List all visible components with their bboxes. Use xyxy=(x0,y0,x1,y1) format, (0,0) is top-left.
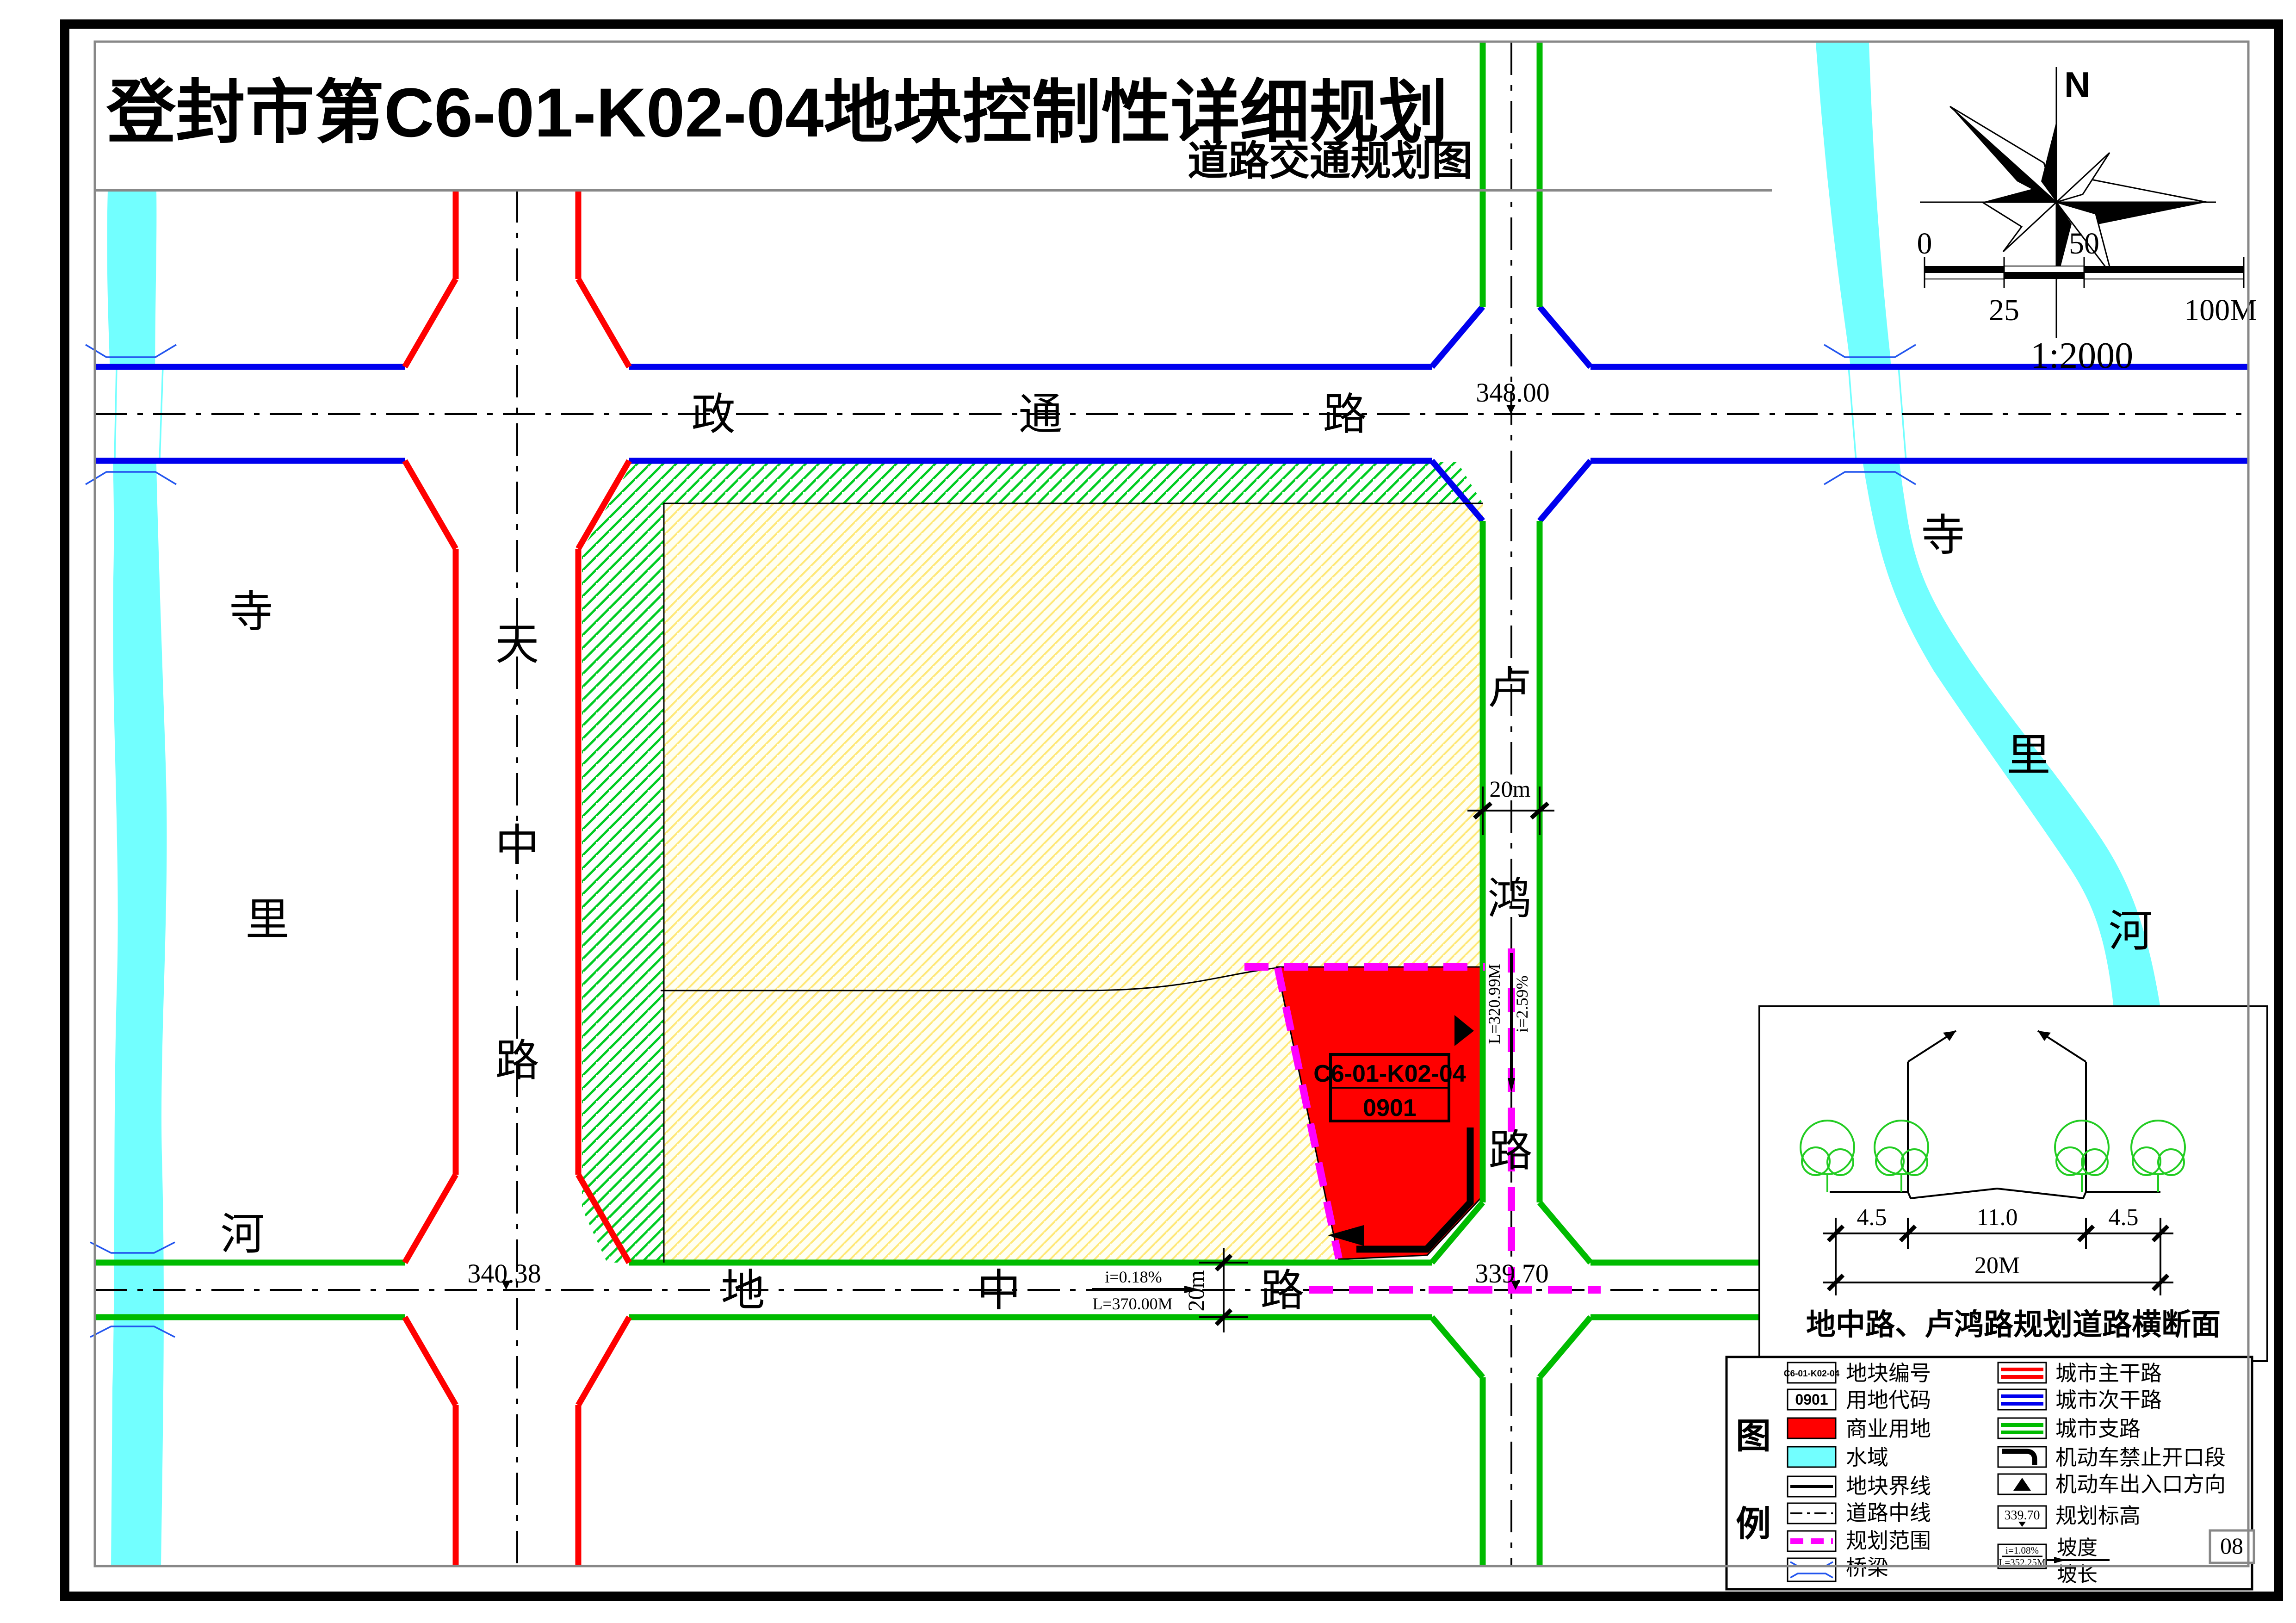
road-label: 政 xyxy=(691,390,735,439)
road-label: 路 xyxy=(1323,390,1367,439)
dim-value: 20m xyxy=(1490,776,1531,802)
legend-panel: 图 例 C6-01-K02-04 地块编号 0901 用地代码 商业用地 水域 … xyxy=(1727,1357,2252,1589)
slope-gradient: i=0.18% xyxy=(1105,1268,1162,1286)
page-number: 08 xyxy=(2220,1533,2243,1559)
planning-map: C6-01-K02-04 0901 政 通 路 地 中 路 天 中 路 卢 鸿 … xyxy=(0,0,2296,1623)
legend-label: 地块编号 xyxy=(1846,1362,1931,1385)
road-label: 路 xyxy=(495,1036,539,1085)
elevation-value: 339.70 xyxy=(1475,1258,1549,1288)
road-label: 中 xyxy=(495,821,539,870)
slope-gradient: i=2.59% xyxy=(1513,975,1531,1032)
map-subtitle: 道路交通规划图 xyxy=(1188,138,1473,184)
river-label: 寺 xyxy=(229,588,273,637)
dim-value: 20m xyxy=(1183,1270,1209,1311)
legend-swatch-commercial xyxy=(1788,1418,1836,1438)
scale-label-100m: 100M xyxy=(2184,293,2257,327)
legend-title-char: 例 xyxy=(1736,1505,1771,1544)
legend-title-char: 图 xyxy=(1736,1417,1771,1456)
dim-carriageway: 11.0 xyxy=(1976,1204,2018,1231)
legend-swatch-use-code: 0901 xyxy=(1795,1391,1828,1408)
scale-label-0: 0 xyxy=(1917,227,1932,260)
river-label: 寺 xyxy=(1921,511,1965,560)
legend-label: 城市主干路 xyxy=(2055,1362,2162,1385)
legend-label: 城市次干路 xyxy=(2055,1388,2162,1412)
elevation-value: 348.00 xyxy=(1476,378,1550,408)
river-label: 里 xyxy=(2006,731,2050,780)
legend-swatch-elevation: 339.70 xyxy=(2005,1508,2040,1523)
road-label: 路 xyxy=(1488,1127,1532,1176)
legend-label: 水域 xyxy=(1846,1446,1888,1469)
road-label: 路 xyxy=(1260,1266,1304,1315)
legend-label: 机动车禁止开口段 xyxy=(2055,1446,2226,1469)
legend-label: 道路中线 xyxy=(1846,1501,1931,1525)
river-label: 里 xyxy=(245,895,289,944)
road-label: 地 xyxy=(721,1266,765,1315)
scale-label-25: 25 xyxy=(1989,293,2019,327)
road-label: 天 xyxy=(495,620,539,669)
dim-sidewalk-left: 4.5 xyxy=(1857,1204,1887,1231)
dim-total-width: 20M xyxy=(1974,1252,2020,1279)
legend-label: 规划范围 xyxy=(1846,1529,1931,1553)
legend-label: 规划标高 xyxy=(2055,1504,2141,1528)
compass-north-label: N xyxy=(2064,64,2090,105)
legend-swatch-plot-code: C6-01-K02-04 xyxy=(1784,1369,1840,1379)
cross-section-title: 地中路、卢鸿路规划道路横断面 xyxy=(1806,1308,2221,1341)
river-label: 河 xyxy=(220,1210,264,1259)
legend-label: 地块界线 xyxy=(1846,1474,1931,1498)
river-label: 河 xyxy=(2108,907,2152,956)
slope-length: L=320.99M xyxy=(1485,964,1504,1044)
plot-code-label: C6-01-K02-04 xyxy=(1313,1060,1466,1087)
dim-sidewalk-right: 4.5 xyxy=(2109,1204,2139,1231)
slope-length: L=370.00M xyxy=(1092,1295,1172,1313)
legend-label: 机动车出入口方向 xyxy=(2055,1473,2226,1496)
road-label: 通 xyxy=(1018,390,1062,439)
road-label: 鸿 xyxy=(1487,874,1531,923)
legend-label-slope-top: 坡度 xyxy=(2057,1536,2098,1559)
cross-section-panel: 4.5 11.0 4.5 20M 地中路、卢鸿路规划道路横断面 xyxy=(1759,1006,2267,1361)
road-label: 中 xyxy=(977,1266,1021,1315)
road-label: 卢 xyxy=(1487,664,1531,713)
scale-label-50: 50 xyxy=(2069,227,2099,260)
legend-label: 桥梁 xyxy=(1846,1556,1888,1580)
legend-swatch-water xyxy=(1788,1447,1836,1467)
plot-use-code-label: 0901 xyxy=(1363,1095,1417,1121)
legend-label: 用地代码 xyxy=(1846,1388,1931,1412)
legend-swatch-slope-i: i=1.08% xyxy=(2005,1545,2039,1556)
legend-label: 商业用地 xyxy=(1846,1417,1931,1441)
legend-label: 城市支路 xyxy=(2055,1417,2141,1441)
scale-ratio: 1:2000 xyxy=(2030,335,2133,376)
